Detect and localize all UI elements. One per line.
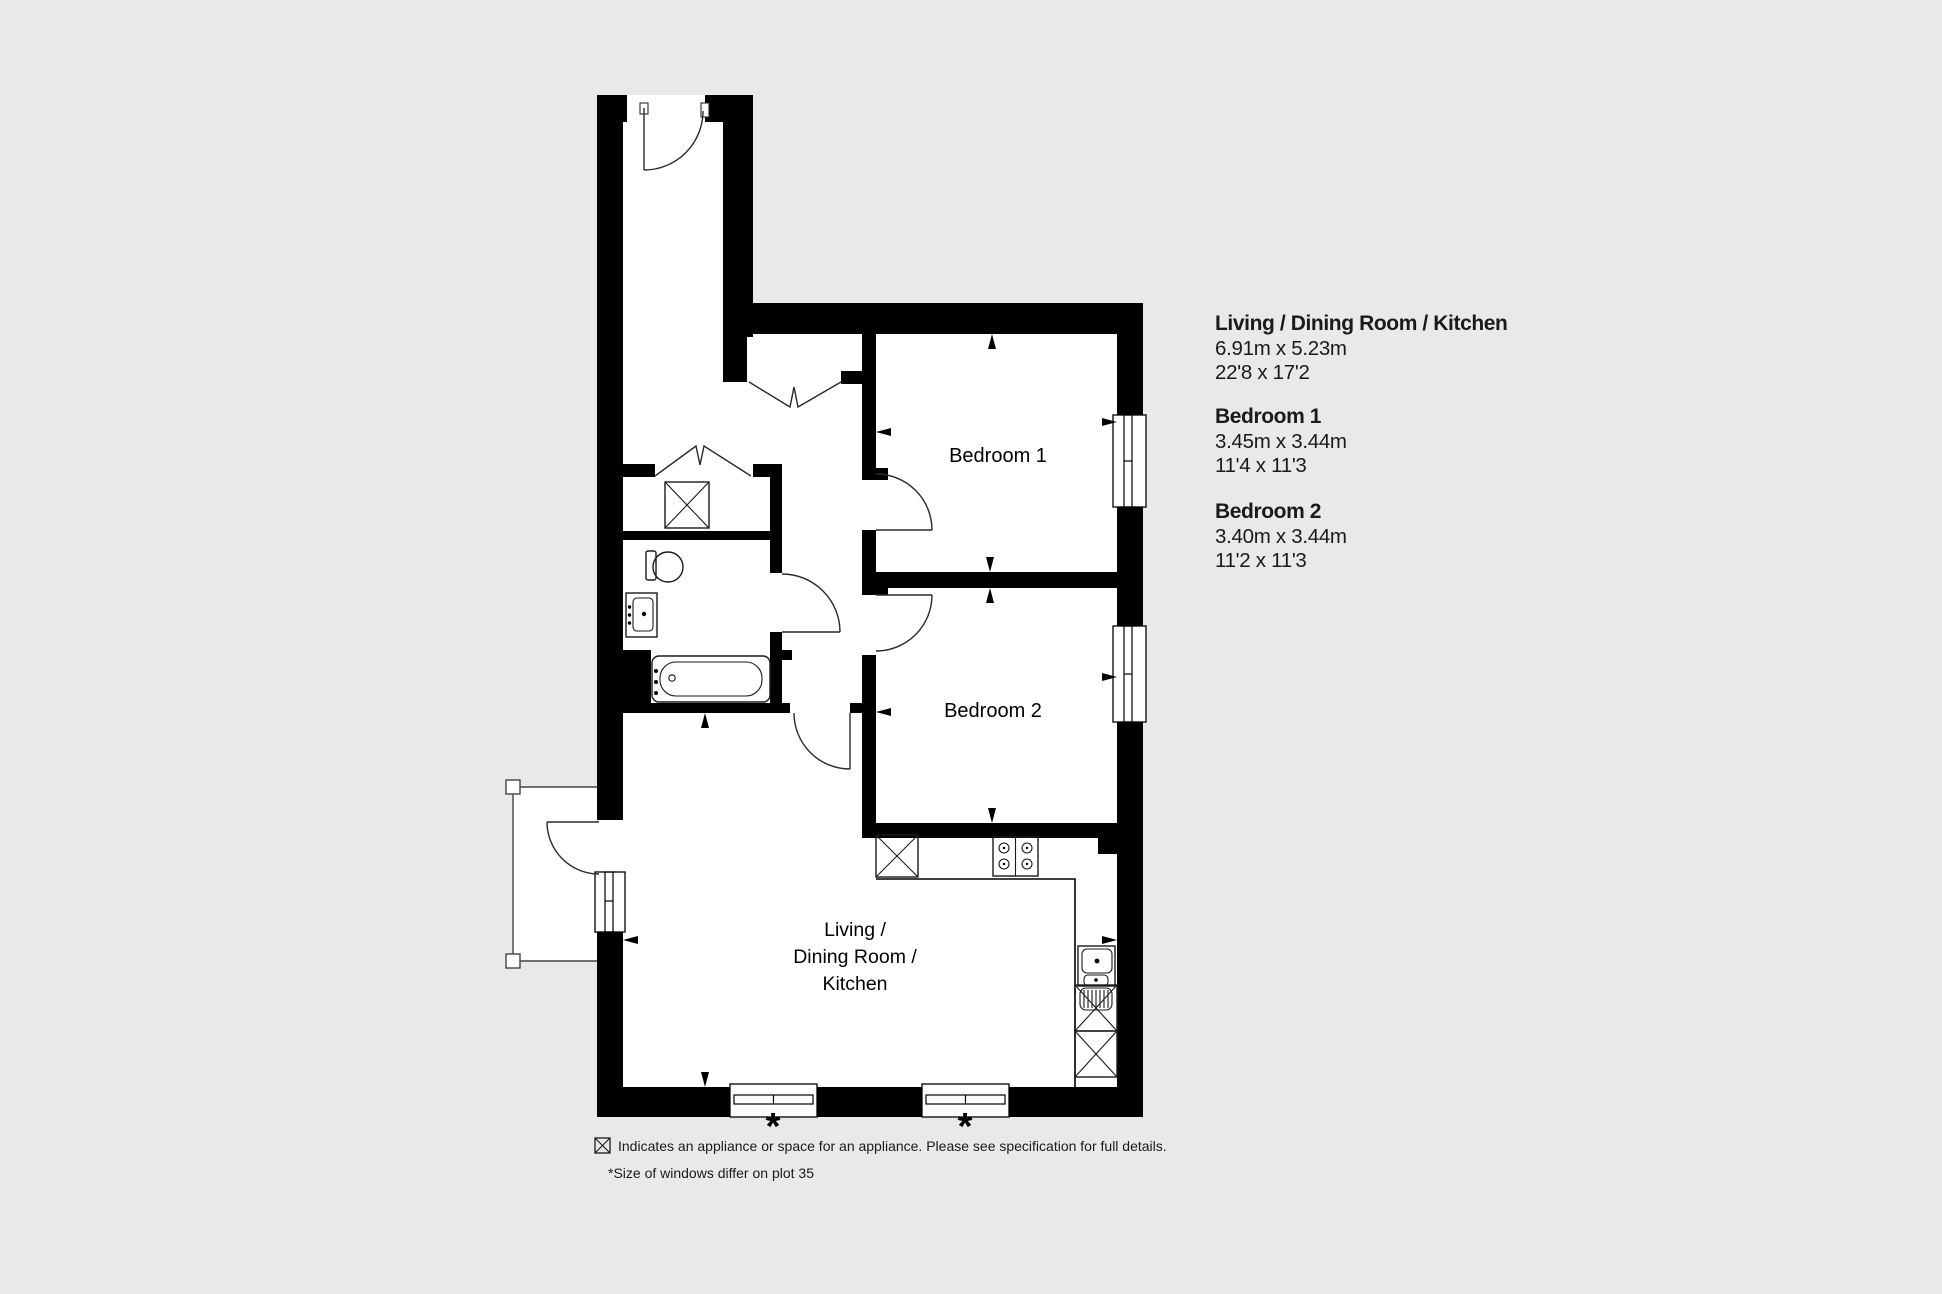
panel-living-imperial: 22'8 x 17'2 bbox=[1215, 361, 1310, 384]
panel-bedroom1-metric: 3.45m x 3.44m bbox=[1215, 430, 1347, 453]
wall-living-top-east bbox=[850, 703, 876, 713]
panel-living-metric: 6.91m x 5.23m bbox=[1215, 337, 1347, 360]
wall-bedroom1-west bbox=[862, 334, 876, 480]
bedroom2-label: Bedroom 2 bbox=[944, 700, 1042, 722]
legend-appliance-note: Indicates an appliance or space for an a… bbox=[618, 1138, 1167, 1154]
wall-west-lower bbox=[862, 655, 876, 823]
wall-kitchen-stub bbox=[1098, 834, 1117, 854]
bedroom1-label: Bedroom 1 bbox=[949, 445, 1047, 467]
floor-plan: * * bbox=[506, 95, 1146, 1148]
balcony-post-top bbox=[506, 780, 520, 794]
panel-bedroom2-imperial: 11'2 x 11'3 bbox=[1215, 549, 1307, 572]
wall-corridor-right bbox=[723, 95, 753, 337]
floorplan-drawing: * * bbox=[0, 0, 1942, 1294]
panel-bedroom2-metric: 3.40m x 3.44m bbox=[1215, 525, 1347, 548]
wall-bathroom-right-lower bbox=[770, 632, 782, 713]
wall-tub-niche bbox=[623, 650, 651, 713]
wall-bathroom-stub bbox=[770, 650, 792, 660]
panel-bedroom1-imperial: 11'4 x 11'3 bbox=[1215, 454, 1307, 477]
bedroom1-window bbox=[1113, 415, 1146, 507]
wall-hall-stub bbox=[723, 334, 747, 382]
balcony-window bbox=[595, 872, 625, 932]
legend: Indicates an appliance or space for an a… bbox=[595, 1138, 1167, 1181]
wall-top bbox=[723, 303, 1143, 334]
appliance-legend-icon bbox=[595, 1138, 610, 1153]
wall-storage-jamb-left bbox=[623, 464, 655, 477]
dimensions-panel: Living / Dining Room / Kitchen 6.91m x 5… bbox=[1215, 312, 1508, 572]
living-label-line1: Living / bbox=[824, 919, 886, 941]
wall-bottom bbox=[597, 1087, 1143, 1117]
living-label-line3: Kitchen bbox=[822, 973, 887, 995]
wall-storage-bottom bbox=[623, 531, 782, 540]
balcony-floor bbox=[513, 787, 597, 961]
legend-window-note: *Size of windows differ on plot 35 bbox=[608, 1165, 814, 1181]
bedroom2-window bbox=[1113, 626, 1146, 722]
wall-hall-jamb bbox=[841, 371, 862, 384]
wall-left-upper bbox=[597, 95, 623, 820]
floorplan-page: * * bbox=[0, 0, 1942, 1294]
balcony-post-bottom bbox=[506, 954, 520, 968]
panel-living-title: Living / Dining Room / Kitchen bbox=[1215, 312, 1508, 335]
panel-bedroom1-title: Bedroom 1 bbox=[1215, 405, 1322, 428]
panel-bedroom2-title: Bedroom 2 bbox=[1215, 500, 1321, 523]
wall-bedroom-divider bbox=[862, 572, 1117, 588]
wall-storage-jamb-right bbox=[753, 464, 782, 477]
wall-bathroom-right-upper bbox=[770, 477, 782, 573]
living-label-line2: Dining Room / bbox=[793, 946, 917, 968]
